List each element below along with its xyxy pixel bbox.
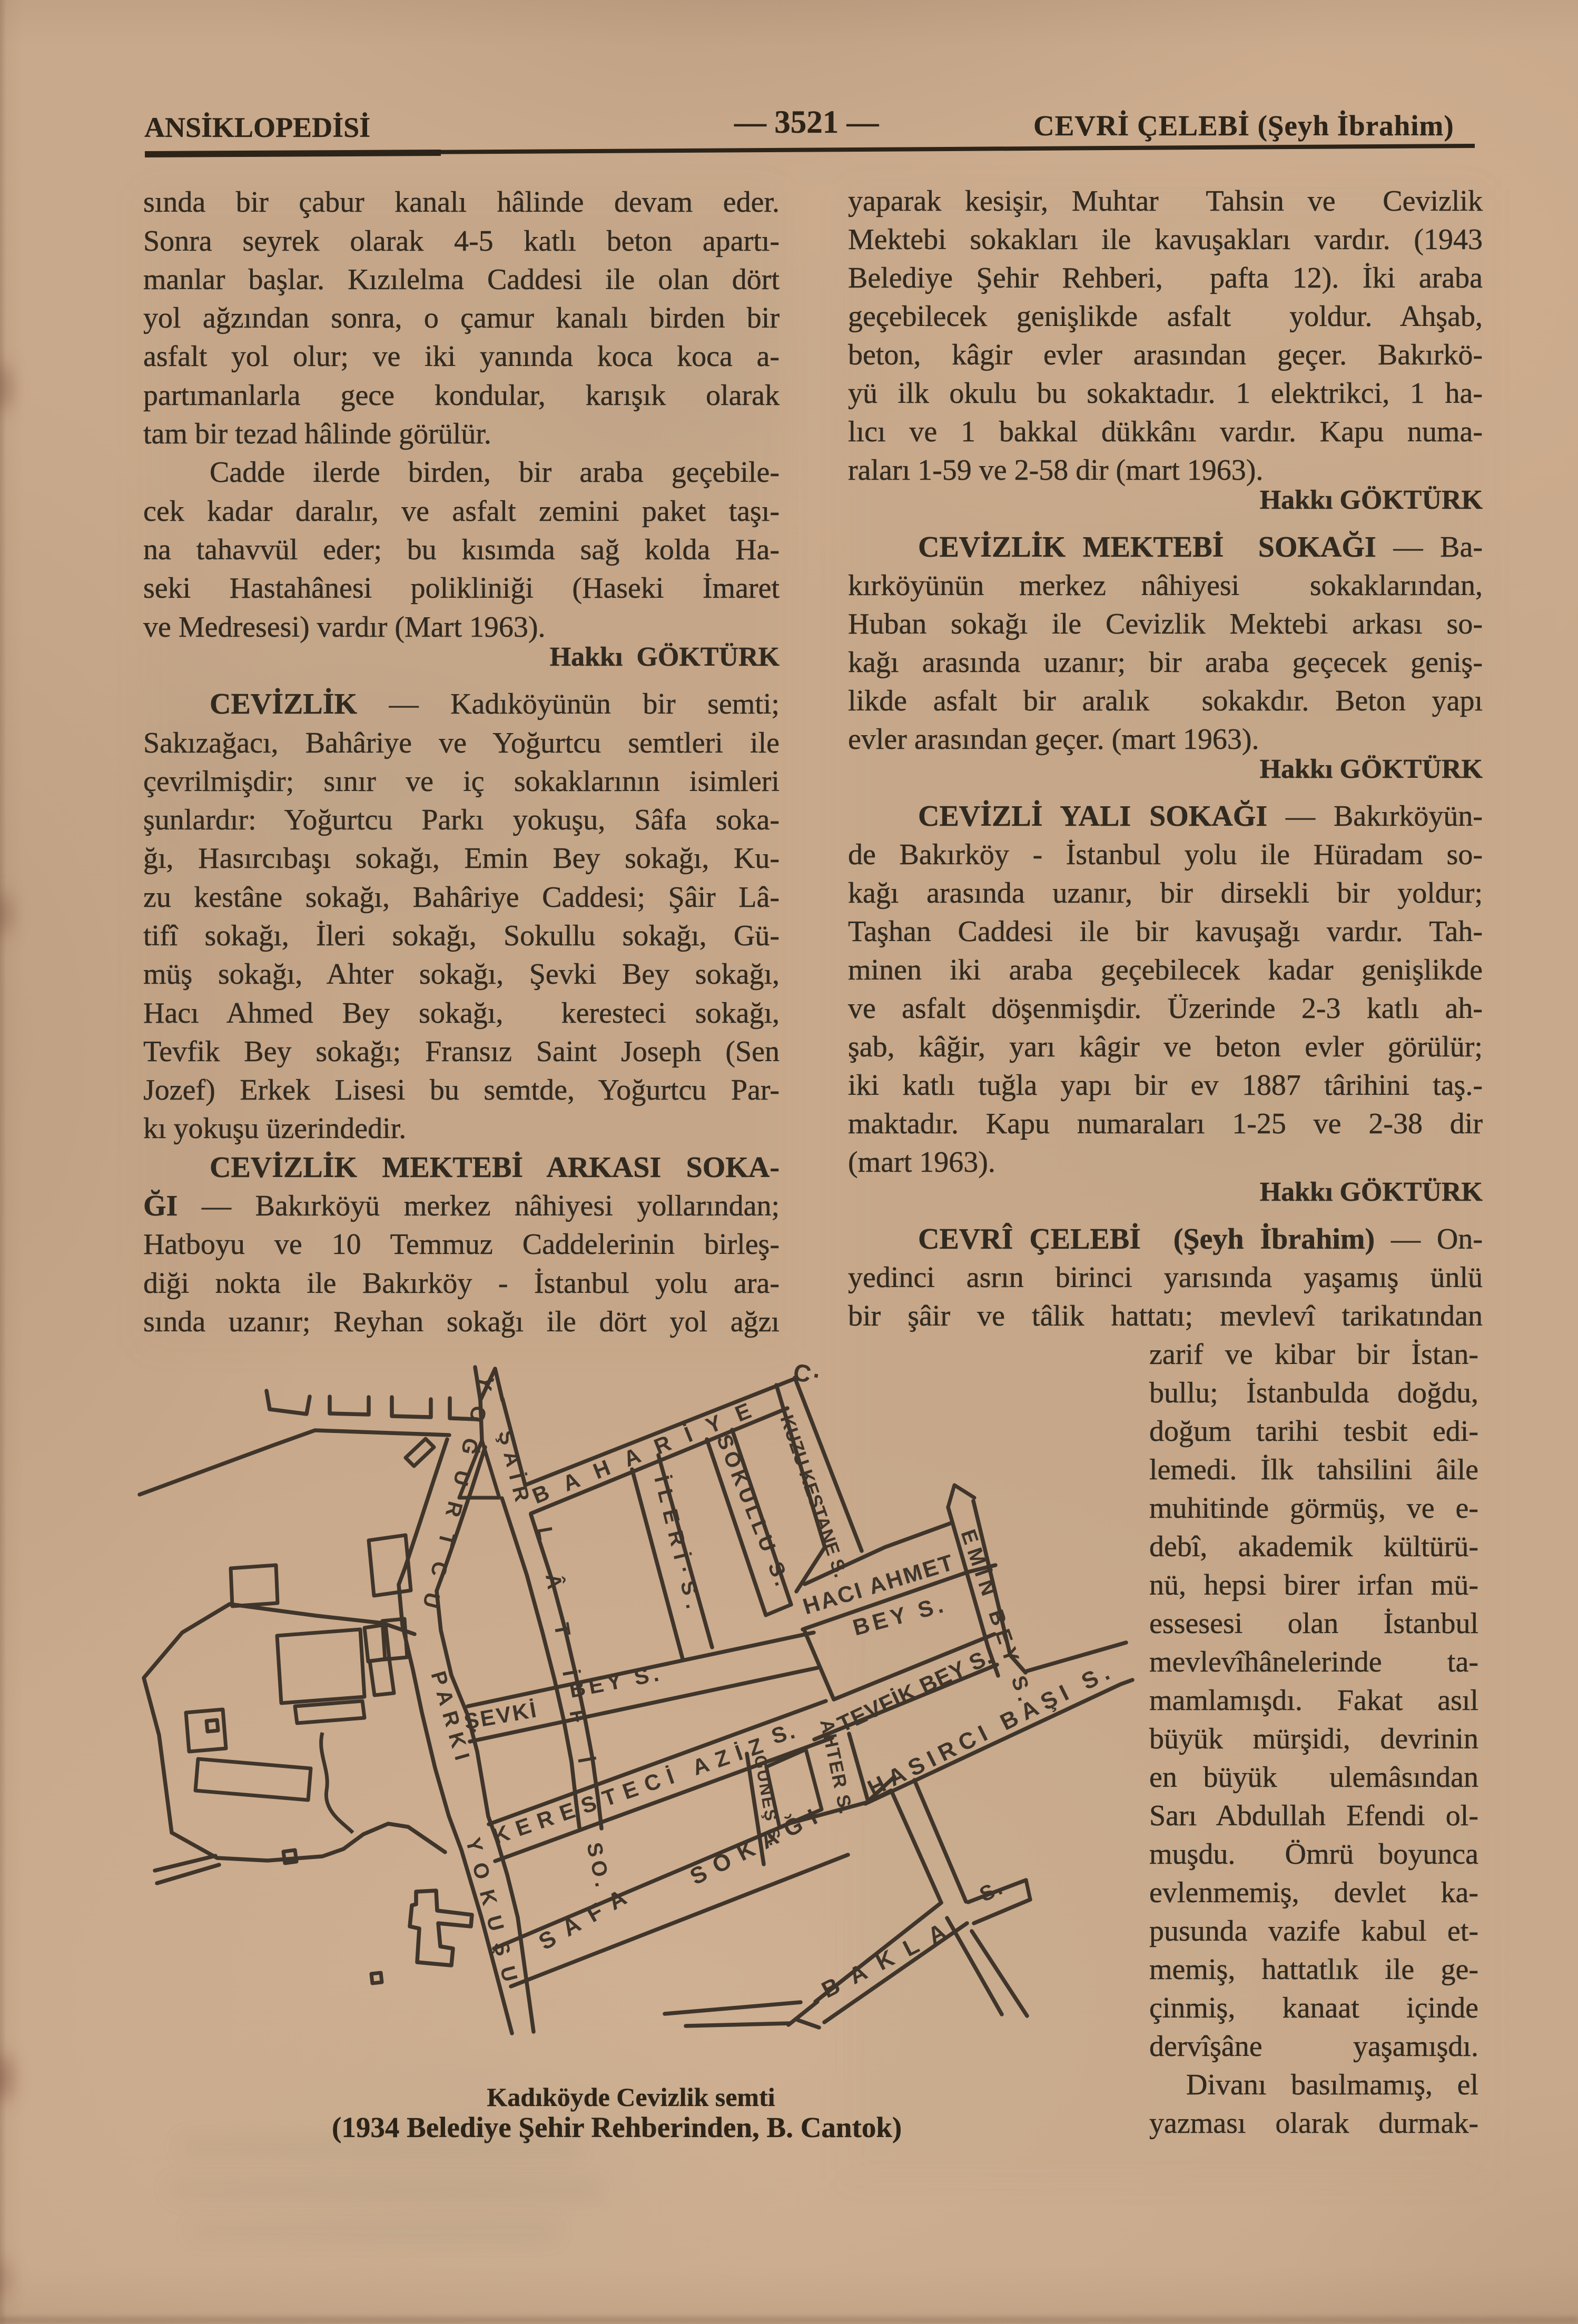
svg-text:SO.: SO. xyxy=(582,1841,615,1893)
svg-text:İLERİ·S.: İLERİ·S. xyxy=(649,1473,707,1619)
svg-text:KERESTECİ AZİZ: KERESTECİ AZİZ xyxy=(490,1730,774,1849)
svg-text:C·: C· xyxy=(791,1358,825,1390)
svg-text:LÂTİFİ: LÂTİFİ xyxy=(532,1525,604,1799)
svg-text:BAKLA: BAKLA xyxy=(817,1912,962,2003)
svg-text:HASIRCI BAŞI S.: HASIRCI BAŞI S. xyxy=(864,1657,1119,1802)
svg-text:SOKULLU S.: SOKULLU S. xyxy=(712,1431,795,1593)
svg-text:S.: S. xyxy=(976,1875,1008,1906)
svg-text:EMİN BEY S.: EMİN BEY S. xyxy=(956,1527,1038,1709)
svg-text:BEY S.: BEY S. xyxy=(567,1660,665,1703)
